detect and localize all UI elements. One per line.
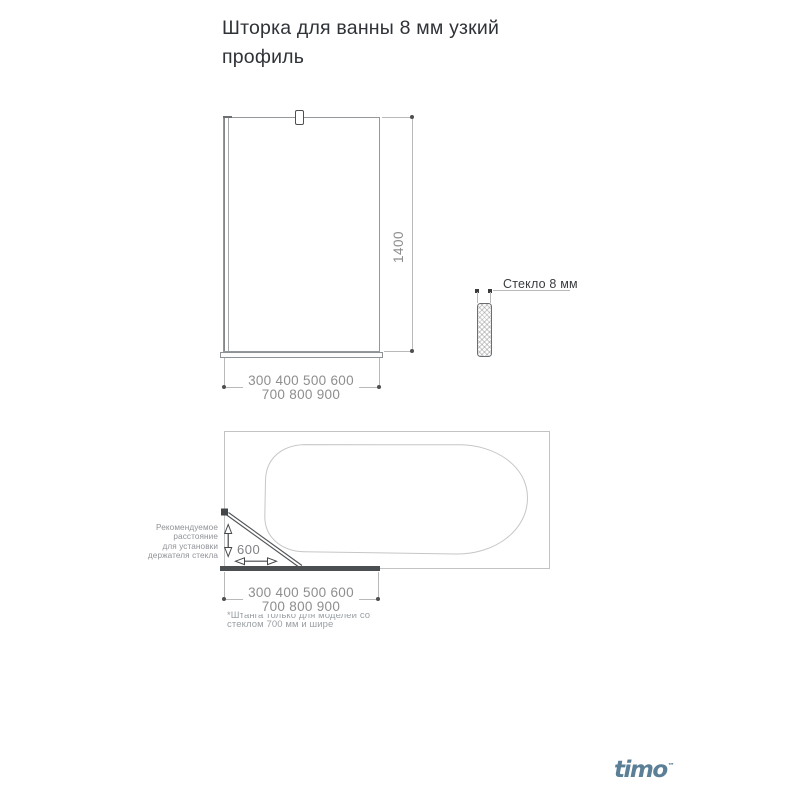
dim-endpoint <box>377 385 381 389</box>
glass-ext-line <box>490 292 491 303</box>
holder-distance-label: 600 <box>237 542 260 557</box>
glass-cross-section <box>477 303 492 357</box>
page-title: Шторка для ванны 8 мм узкий профиль <box>222 14 522 72</box>
dim-endpoint <box>410 349 414 353</box>
width-options-row1: 300 400 500 600 <box>248 374 354 388</box>
holder-note: Рекомендуемое расстояние для установки д… <box>120 523 218 560</box>
product-diagram-page: Шторка для ванны 8 мм узкий профиль 1400… <box>0 0 800 800</box>
top-view-width-options: 300 400 500 600 700 800 900 <box>243 586 359 614</box>
height-dim-line <box>412 117 413 352</box>
front-view-bottom-seal <box>220 352 383 358</box>
dim-endpoint <box>410 115 414 119</box>
glass-thickness-label: Стекло 8 мм <box>503 277 578 291</box>
width-options-row2: 700 800 900 <box>248 388 354 402</box>
dim-ext-line-right <box>378 572 379 600</box>
holder-note-line: Рекомендуемое <box>120 523 218 532</box>
dim-endpoint <box>222 597 226 601</box>
timo-logo-text: timo <box>614 757 667 783</box>
holder-note-line: для установки <box>120 542 218 551</box>
width-options-row1: 300 400 500 600 <box>248 586 354 600</box>
top-view-glass-bar <box>220 566 380 571</box>
front-view-profile-cap <box>223 116 232 118</box>
front-view-wall-profile <box>224 118 229 351</box>
height-dim-label: 1400 <box>391 219 407 275</box>
holder-note-line: держателя стекла <box>120 551 218 560</box>
holder-note-line: расстояние <box>120 532 218 541</box>
dim-endpoint <box>222 385 226 389</box>
dim-ext-line-left <box>224 358 225 388</box>
width-options-row2: 700 800 900 <box>248 600 354 614</box>
dim-ext-line-left <box>224 572 225 600</box>
top-view-overlay <box>0 0 800 800</box>
dim-ext-line-top <box>382 117 412 118</box>
front-view-width-options: 300 400 500 600 700 800 900 <box>243 374 359 402</box>
timo-logo: timo™ <box>614 757 675 783</box>
top-view-enclosure <box>224 431 550 569</box>
front-view-glass-panel <box>223 117 380 352</box>
glass-ext-line <box>477 292 478 303</box>
dim-endpoint <box>376 597 380 601</box>
dim-ext-line-right <box>379 358 380 388</box>
trademark-symbol: ™ <box>668 762 675 770</box>
dim-ext-line-bottom <box>384 351 412 352</box>
front-view-top-bracket <box>295 110 304 125</box>
footnote-line2: стеклом 700 мм и шире <box>227 620 370 629</box>
